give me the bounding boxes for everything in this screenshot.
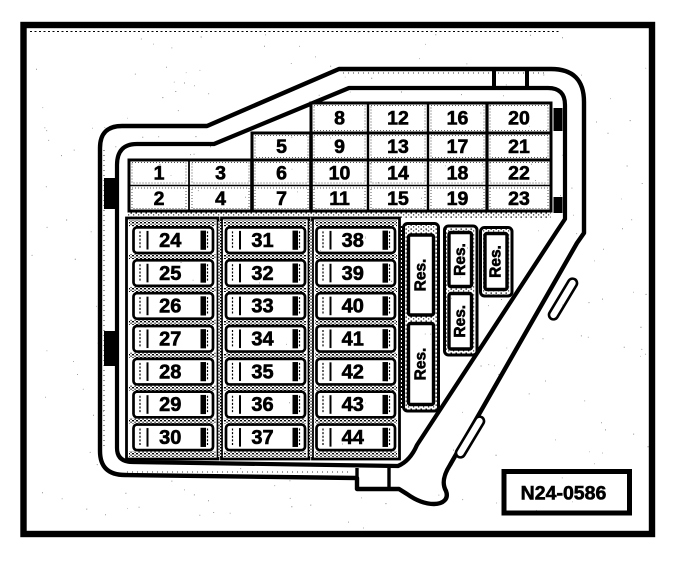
svg-text:28: 28	[159, 361, 181, 383]
svg-text:35: 35	[251, 361, 273, 383]
svg-text:N24-0586: N24-0586	[521, 483, 607, 505]
svg-text:2: 2	[154, 188, 165, 210]
svg-text:44: 44	[342, 427, 365, 449]
svg-text:13: 13	[387, 136, 409, 158]
svg-text:8: 8	[334, 108, 345, 130]
svg-text:27: 27	[159, 328, 181, 350]
svg-text:24: 24	[159, 230, 182, 252]
svg-text:40: 40	[342, 296, 364, 318]
svg-text:17: 17	[447, 136, 469, 158]
svg-text:6: 6	[276, 162, 287, 184]
svg-text:Res.: Res.	[413, 348, 430, 381]
svg-text:25: 25	[159, 263, 181, 285]
svg-text:16: 16	[447, 108, 469, 130]
svg-text:42: 42	[342, 361, 364, 383]
svg-text:31: 31	[251, 230, 273, 252]
svg-text:34: 34	[251, 328, 274, 350]
svg-text:10: 10	[329, 162, 351, 184]
svg-text:11: 11	[329, 188, 350, 210]
svg-text:33: 33	[251, 296, 273, 318]
svg-text:Res.: Res.	[488, 245, 505, 278]
svg-text:14: 14	[387, 162, 409, 184]
svg-text:32: 32	[251, 263, 273, 285]
svg-text:29: 29	[159, 394, 181, 416]
svg-text:38: 38	[342, 230, 364, 252]
svg-text:12: 12	[387, 108, 409, 130]
svg-text:37: 37	[251, 427, 273, 449]
svg-text:39: 39	[342, 263, 364, 285]
svg-text:21: 21	[508, 136, 530, 158]
svg-text:23: 23	[508, 188, 530, 210]
svg-text:9: 9	[334, 136, 345, 158]
svg-text:18: 18	[447, 162, 469, 184]
svg-text:4: 4	[215, 188, 226, 210]
svg-text:22: 22	[508, 162, 530, 184]
svg-text:41: 41	[342, 328, 364, 350]
svg-text:36: 36	[251, 394, 273, 416]
svg-text:5: 5	[276, 136, 287, 158]
svg-text:43: 43	[342, 394, 364, 416]
svg-text:1: 1	[154, 162, 165, 184]
svg-text:Res.: Res.	[452, 305, 469, 338]
svg-text:3: 3	[215, 162, 226, 184]
svg-text:19: 19	[447, 188, 469, 210]
svg-text:Res.: Res.	[452, 243, 469, 276]
svg-text:20: 20	[508, 108, 530, 130]
svg-text:26: 26	[159, 296, 181, 318]
svg-text:7: 7	[276, 188, 287, 210]
svg-text:Res.: Res.	[413, 259, 430, 292]
svg-text:30: 30	[159, 427, 181, 449]
svg-text:15: 15	[387, 188, 409, 210]
